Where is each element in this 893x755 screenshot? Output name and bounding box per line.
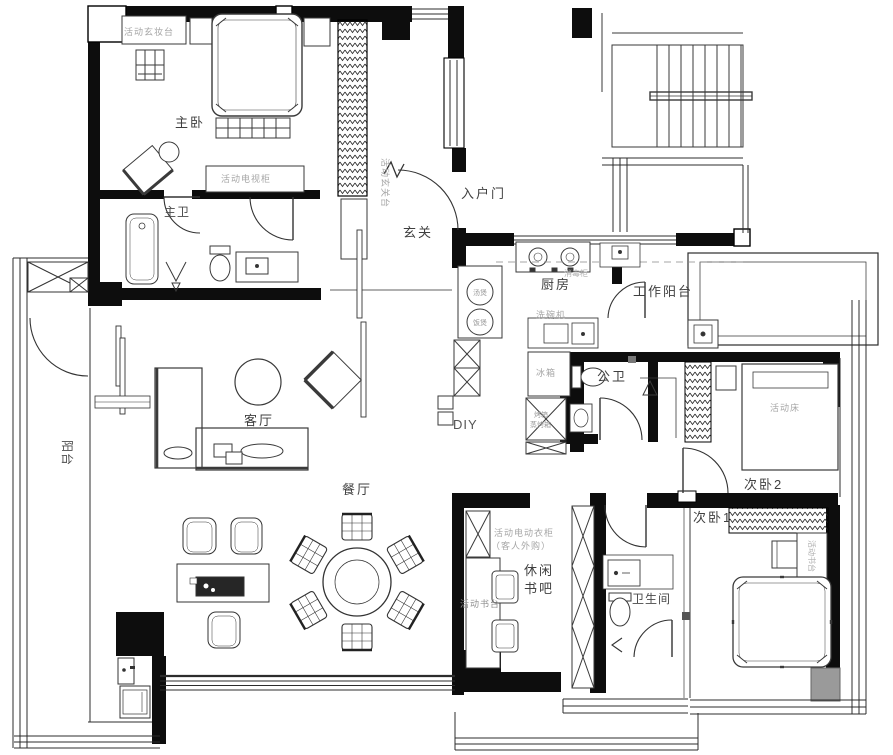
tv-cabinet xyxy=(206,166,304,192)
wall-box xyxy=(628,356,636,363)
bar-chair-1 xyxy=(492,571,518,603)
oven-stack xyxy=(526,398,566,454)
tea-tray xyxy=(190,577,244,596)
dining-chair xyxy=(290,591,328,630)
dressing-table xyxy=(122,16,186,44)
toilet-public xyxy=(572,366,605,388)
side-table xyxy=(159,142,179,162)
sink-public xyxy=(570,404,592,432)
bedroom1-wardrobe xyxy=(729,508,828,533)
dining-chair xyxy=(342,624,372,650)
toilet-bathroom xyxy=(609,593,631,626)
shaft-column xyxy=(572,506,594,688)
master-wardrobe xyxy=(338,20,367,196)
tall-cabinet xyxy=(458,266,502,338)
toilet-master xyxy=(210,246,230,281)
diy-box-2 xyxy=(438,412,453,425)
living-room-furniture xyxy=(155,352,361,470)
floorplan-drawing xyxy=(0,0,893,755)
bedroom1-furniture xyxy=(729,508,831,667)
balcony-shelf xyxy=(95,396,150,408)
bedroom2-door xyxy=(683,448,728,493)
bedroom1-chair xyxy=(772,541,797,568)
bedroom1-desk xyxy=(797,533,827,579)
balcony-door-panel xyxy=(118,658,135,684)
entry-door-arc xyxy=(384,162,458,230)
electric-wardrobe-box xyxy=(466,511,490,557)
bedroom1-bed xyxy=(733,577,831,667)
dishwasher-counter xyxy=(528,318,598,348)
bedroom2-wardrobe xyxy=(685,362,711,442)
master-bed xyxy=(212,14,302,116)
work-balcony-fixtures xyxy=(688,320,718,348)
corner-column xyxy=(811,668,840,701)
coffee-table-2 xyxy=(226,452,242,464)
tea-chair-1 xyxy=(183,518,216,554)
fridge-box xyxy=(528,352,570,396)
dining-chair xyxy=(290,536,328,575)
beam-x-box xyxy=(28,262,88,292)
kitchen-sink xyxy=(612,246,628,259)
diy-box-1 xyxy=(438,396,453,409)
sofa-south xyxy=(196,428,308,470)
bedroom2-furniture xyxy=(685,362,838,470)
stove xyxy=(516,242,590,272)
sofa-west xyxy=(155,368,202,468)
staircase xyxy=(602,13,752,147)
public-bath-fixtures xyxy=(570,356,676,438)
bathtub xyxy=(126,214,158,284)
bath-sink xyxy=(608,560,640,586)
bed-bench xyxy=(216,118,290,138)
floor-plan: 主卧 主卫 入户门 玄关 厨房 工作阳台 公卫 次卧2 次卧1 卫生间 客厅 餐… xyxy=(0,0,893,755)
master-bath-door xyxy=(164,197,200,233)
round-rug xyxy=(235,359,281,405)
washing-machine xyxy=(688,320,718,348)
nightstand-left xyxy=(190,18,212,44)
stool xyxy=(136,50,164,80)
bathroom-top-door xyxy=(605,505,646,547)
cabinet-x-boxes xyxy=(454,340,480,396)
wall-block xyxy=(682,612,690,620)
bar-chair-2 xyxy=(492,620,518,652)
accent-chair xyxy=(305,352,362,409)
rice-cooker-circle xyxy=(467,309,493,335)
dining-chair xyxy=(386,591,424,630)
dining-chair xyxy=(342,514,372,540)
entry-console xyxy=(341,199,367,259)
soup-pot-circle xyxy=(467,279,493,305)
vanity-master xyxy=(236,252,298,282)
movable-bed xyxy=(742,364,838,470)
balcony-door xyxy=(30,318,88,376)
kitchen-balcony-door xyxy=(608,282,645,318)
dining-chair xyxy=(386,536,424,575)
master-bedroom-furniture xyxy=(122,14,367,259)
balcony-appliance xyxy=(120,686,150,718)
dining-furniture xyxy=(177,514,424,650)
public-bath-door xyxy=(600,398,642,440)
dining-table-inner xyxy=(335,560,379,604)
tea-chair-3 xyxy=(208,612,240,648)
master-bath-fixtures xyxy=(126,214,298,291)
nightstand-right xyxy=(304,18,330,46)
stair-rail xyxy=(650,92,752,100)
master-hall-door xyxy=(250,197,293,240)
nightstand-bedroom2 xyxy=(716,366,736,390)
book-bar-furniture xyxy=(466,506,594,688)
tea-chair-2 xyxy=(231,518,262,554)
shower-symbol xyxy=(166,262,186,291)
